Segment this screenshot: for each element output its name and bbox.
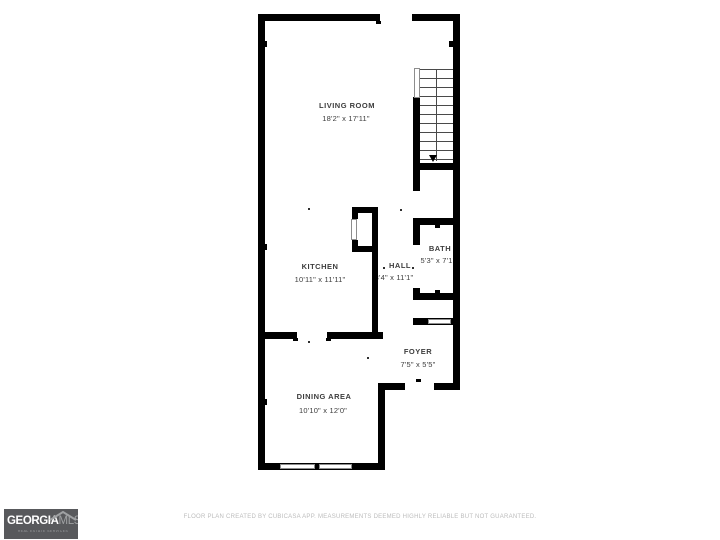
plan-dot [308, 341, 310, 343]
wall-exterior-right [453, 14, 460, 390]
plan-dot [412, 267, 414, 269]
room-label-kitchen: KITCHEN [302, 262, 339, 271]
wall-dining-right [378, 383, 385, 470]
floor-plan-canvas: LIVING ROOM 18'2" x 17'11" KITCHEN 10'11… [0, 0, 720, 540]
room-label-dining-area: DINING AREA [297, 392, 352, 401]
wall-pantry-stub-top [352, 207, 358, 219]
wall-foyer-bottom-right [434, 383, 460, 390]
room-dimensions-dining-area: 10'10" x 12'0" [299, 406, 347, 415]
room-dimensions-foyer: 7'5" x 5'5" [401, 360, 436, 369]
wall-tick [435, 225, 440, 228]
wall-foyer-bottom-left [378, 383, 405, 390]
wall-tick [326, 338, 331, 341]
window-dining-right [319, 464, 352, 469]
plan-dot [308, 208, 310, 210]
room-label-hall: HALL [389, 261, 411, 270]
room-label-bath: BATH [429, 244, 451, 253]
window-dining-left [280, 464, 315, 469]
stairs-down-arrow-icon [429, 155, 437, 162]
room-dimensions-kitchen: 10'11" x 11'11" [295, 275, 346, 284]
plan-dot [367, 357, 369, 359]
wall-bath-bottom [413, 293, 460, 300]
wall-understair-closet-left [413, 170, 420, 191]
wall-tick [449, 41, 453, 47]
wall-bath-left-upper [413, 225, 420, 245]
foyer-closet-door [428, 319, 451, 324]
plan-dot [383, 267, 385, 269]
logo-tagline-text: REAL ESTATE SERVICES [18, 530, 68, 533]
staircase [420, 69, 453, 161]
room-dimensions-hall: 3'4" x 11'1" [375, 273, 414, 282]
room-label-living-room: LIVING ROOM [319, 101, 375, 110]
wall-bath-top [413, 218, 460, 225]
plan-dot [400, 209, 402, 211]
wall-exterior-top-left [258, 14, 380, 21]
wall-tick [376, 21, 381, 24]
wall-tick [416, 379, 421, 382]
wall-kitchen-dining-left [258, 332, 297, 339]
wall-tick [263, 244, 267, 250]
disclaimer-text: FLOOR PLAN CREATED BY CUBICASA APP. MEAS… [0, 514, 720, 520]
room-dimensions-bath: 5'3" x 7'1" [421, 256, 456, 265]
room-label-foyer: FOYER [404, 347, 432, 356]
pantry-door [351, 219, 357, 240]
wall-tick [263, 399, 267, 405]
wall-tick [435, 290, 440, 293]
wall-kitchen-hall-divider [372, 207, 378, 338]
georgia-mls-logo: GEORGIAMLS REAL ESTATE SERVICES [4, 509, 78, 539]
wall-stair-left [413, 97, 420, 170]
stair-railing [414, 68, 420, 98]
wall-pantry-stub-bottom [352, 240, 358, 252]
wall-stair-bottom [413, 163, 460, 170]
room-dimensions-living-room: 18'2" x 17'11" [322, 114, 370, 123]
wall-tick [293, 338, 298, 341]
wall-tick [263, 41, 267, 47]
roof-icon [49, 511, 77, 521]
